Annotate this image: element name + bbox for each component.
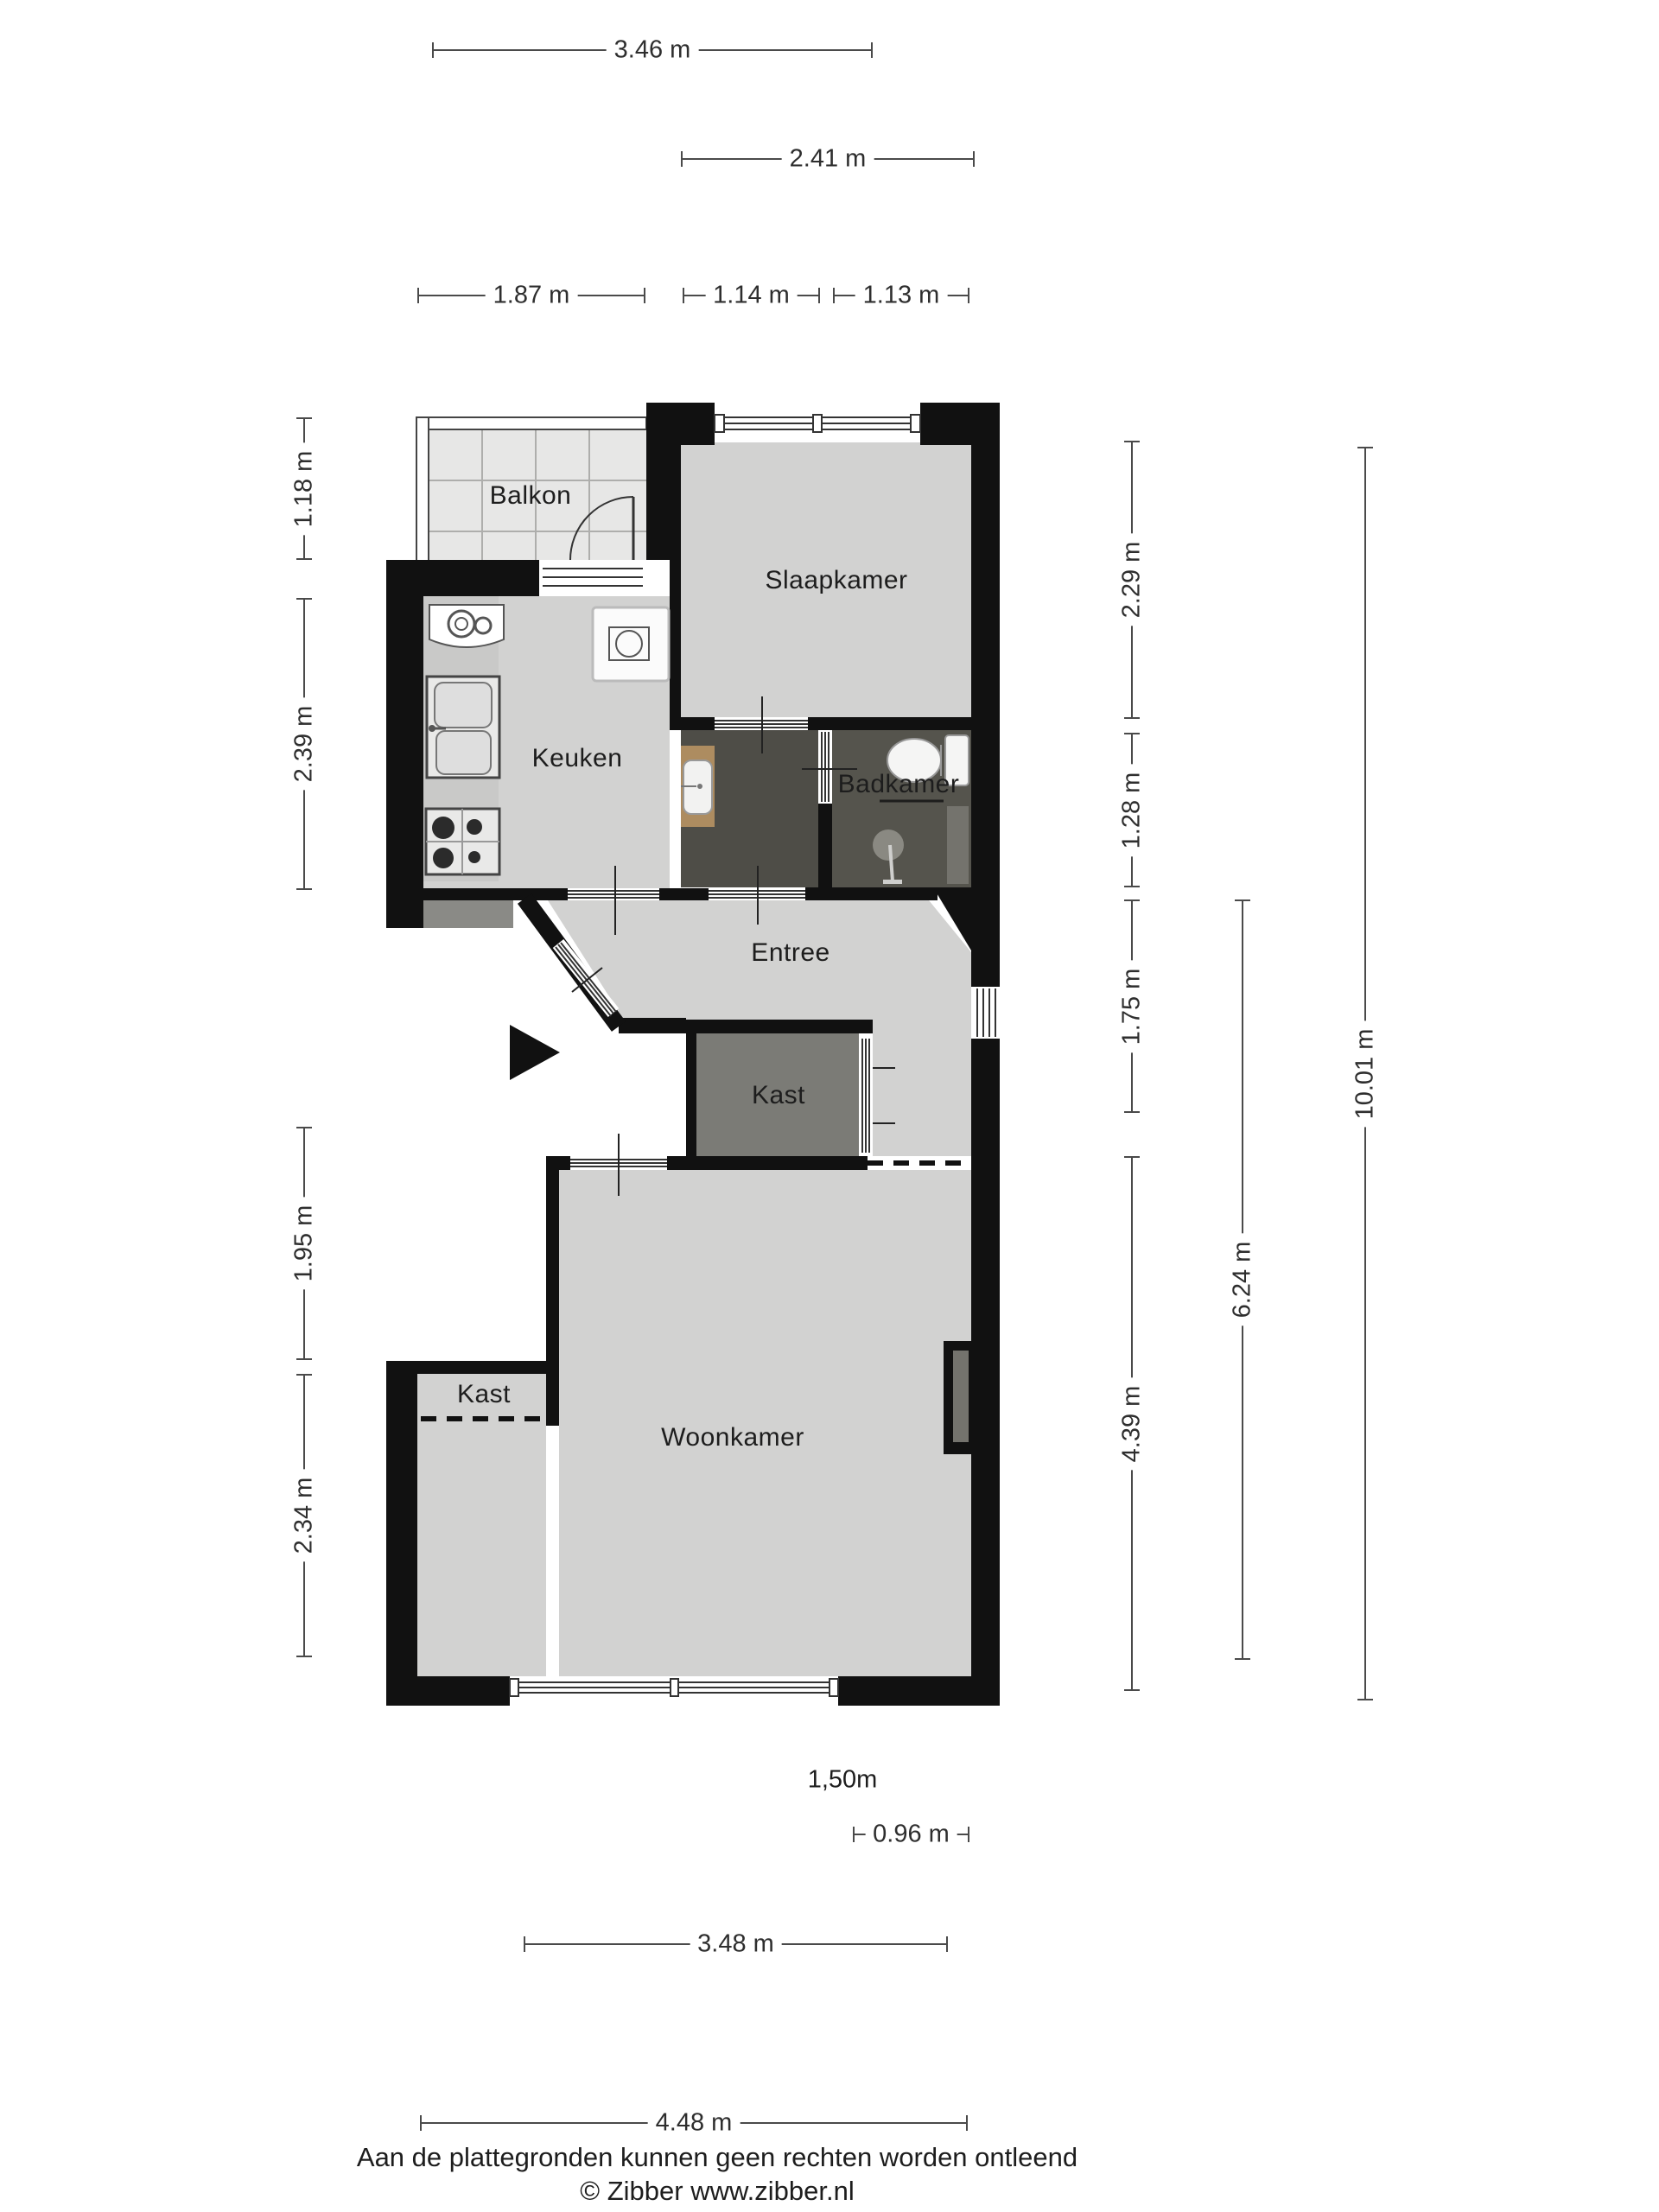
dimension-label: 2.41 m <box>782 145 874 174</box>
oven-icon <box>593 607 669 681</box>
dimension-label: 1.18 m <box>290 442 319 535</box>
dimension-label: 1.28 m <box>1118 764 1147 856</box>
front-door-right <box>971 987 1000 1039</box>
dimension-label: 1.95 m <box>290 1198 319 1290</box>
chimney-inner <box>953 1351 969 1442</box>
stove-icon <box>426 809 499 874</box>
ceiling-height-marker: 1,50m <box>808 1766 878 1795</box>
dimension-label: 6.24 m <box>1229 1234 1257 1326</box>
slaapkamer-window <box>715 403 920 442</box>
dimension-label: 10.01 m <box>1351 1020 1380 1127</box>
dimension-label: 0.96 m <box>865 1821 957 1849</box>
dimension-right-624: 6.24 m <box>1235 899 1250 1660</box>
dimension-label: 2.34 m <box>290 1470 319 1562</box>
entrance-arrow-icon <box>510 1025 560 1080</box>
dimension-label: 1.87 m <box>486 282 578 310</box>
dimension-right-1001: 10.01 m <box>1357 447 1373 1700</box>
floorplan-drawing <box>0 0 1659 2212</box>
dimension-right-439: 4.39 m <box>1124 1156 1140 1691</box>
room-label-badkamer: Badkamer <box>838 770 960 799</box>
woonkamer-window <box>510 1676 838 1706</box>
dimension-left-118: 1.18 m <box>296 417 312 560</box>
dimension-label: 1.13 m <box>855 282 948 310</box>
dimension-label: 2.39 m <box>290 698 319 791</box>
room-label-keuken: Keuken <box>532 744 623 773</box>
badkamer-duct <box>947 806 969 884</box>
dimension-bottom-348: 3.48 m <box>524 1936 948 1952</box>
dimension-label: 3.46 m <box>607 36 699 65</box>
room-label-slaapkamer: Slaapkamer <box>765 566 907 595</box>
dimension-bottom-448: 4.48 m <box>420 2115 968 2131</box>
dimension-label: 1.75 m <box>1118 960 1147 1052</box>
dimension-top-113: 1.13 m <box>833 288 969 303</box>
disclaimer-text: Aan de plattegronden kunnen geen rechten… <box>357 2142 1077 2173</box>
dimension-left-234: 2.34 m <box>296 1374 312 1657</box>
dimension-top-241: 2.41 m <box>681 151 975 167</box>
vanity-icon <box>681 746 715 827</box>
dimension-top-187: 1.87 m <box>417 288 645 303</box>
room-label-woonkamer: Woonkamer <box>661 1423 804 1452</box>
dimension-top-114: 1.14 m <box>683 288 820 303</box>
kitchen-sink-icon <box>427 677 499 778</box>
dimension-right-175: 1.75 m <box>1124 899 1140 1113</box>
room-label-kast-entree: Kast <box>752 1081 805 1110</box>
dimension-label: 4.39 m <box>1118 1377 1147 1470</box>
room-label-kast-woonkamer: Kast <box>457 1380 511 1409</box>
dimension-label: 2.29 m <box>1118 534 1147 626</box>
dimension-right-128: 1.28 m <box>1124 733 1140 887</box>
floorplan-page: BalkonSlaapkamerKeukenBadkamerEntreeKast… <box>0 0 1659 2212</box>
dimension-label: 3.48 m <box>690 1930 782 1959</box>
credit-text: © Zibber www.zibber.nl <box>580 2176 854 2207</box>
dimension-right-229: 2.29 m <box>1124 441 1140 719</box>
dimension-top-346: 3.46 m <box>432 42 873 58</box>
room-label-balkon: Balkon <box>490 481 572 511</box>
dimension-left-239: 2.39 m <box>296 598 312 890</box>
dimension-label: 1.14 m <box>705 282 798 310</box>
landing-floor <box>423 900 513 928</box>
open-passage <box>868 1156 971 1170</box>
dimension-left-195: 1.95 m <box>296 1127 312 1360</box>
dimension-bottom-096: 0.96 m <box>853 1827 969 1842</box>
dimension-label: 4.48 m <box>648 2109 741 2138</box>
boiler-icon <box>429 605 504 647</box>
room-label-entree: Entree <box>751 938 829 968</box>
